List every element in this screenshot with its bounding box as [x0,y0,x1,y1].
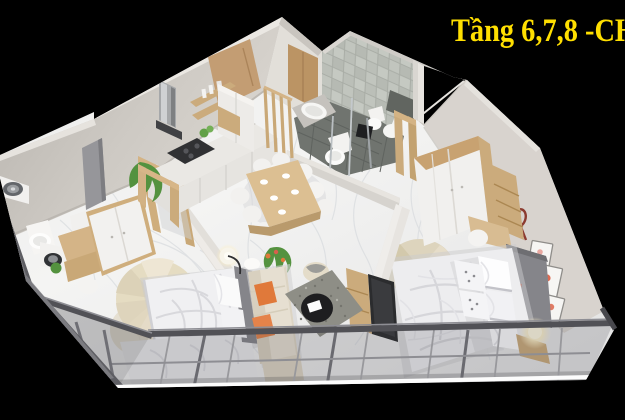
svg-text:Tầng 6,7,8 -CH: Tầng 6,7,8 -CH [451,13,625,49]
